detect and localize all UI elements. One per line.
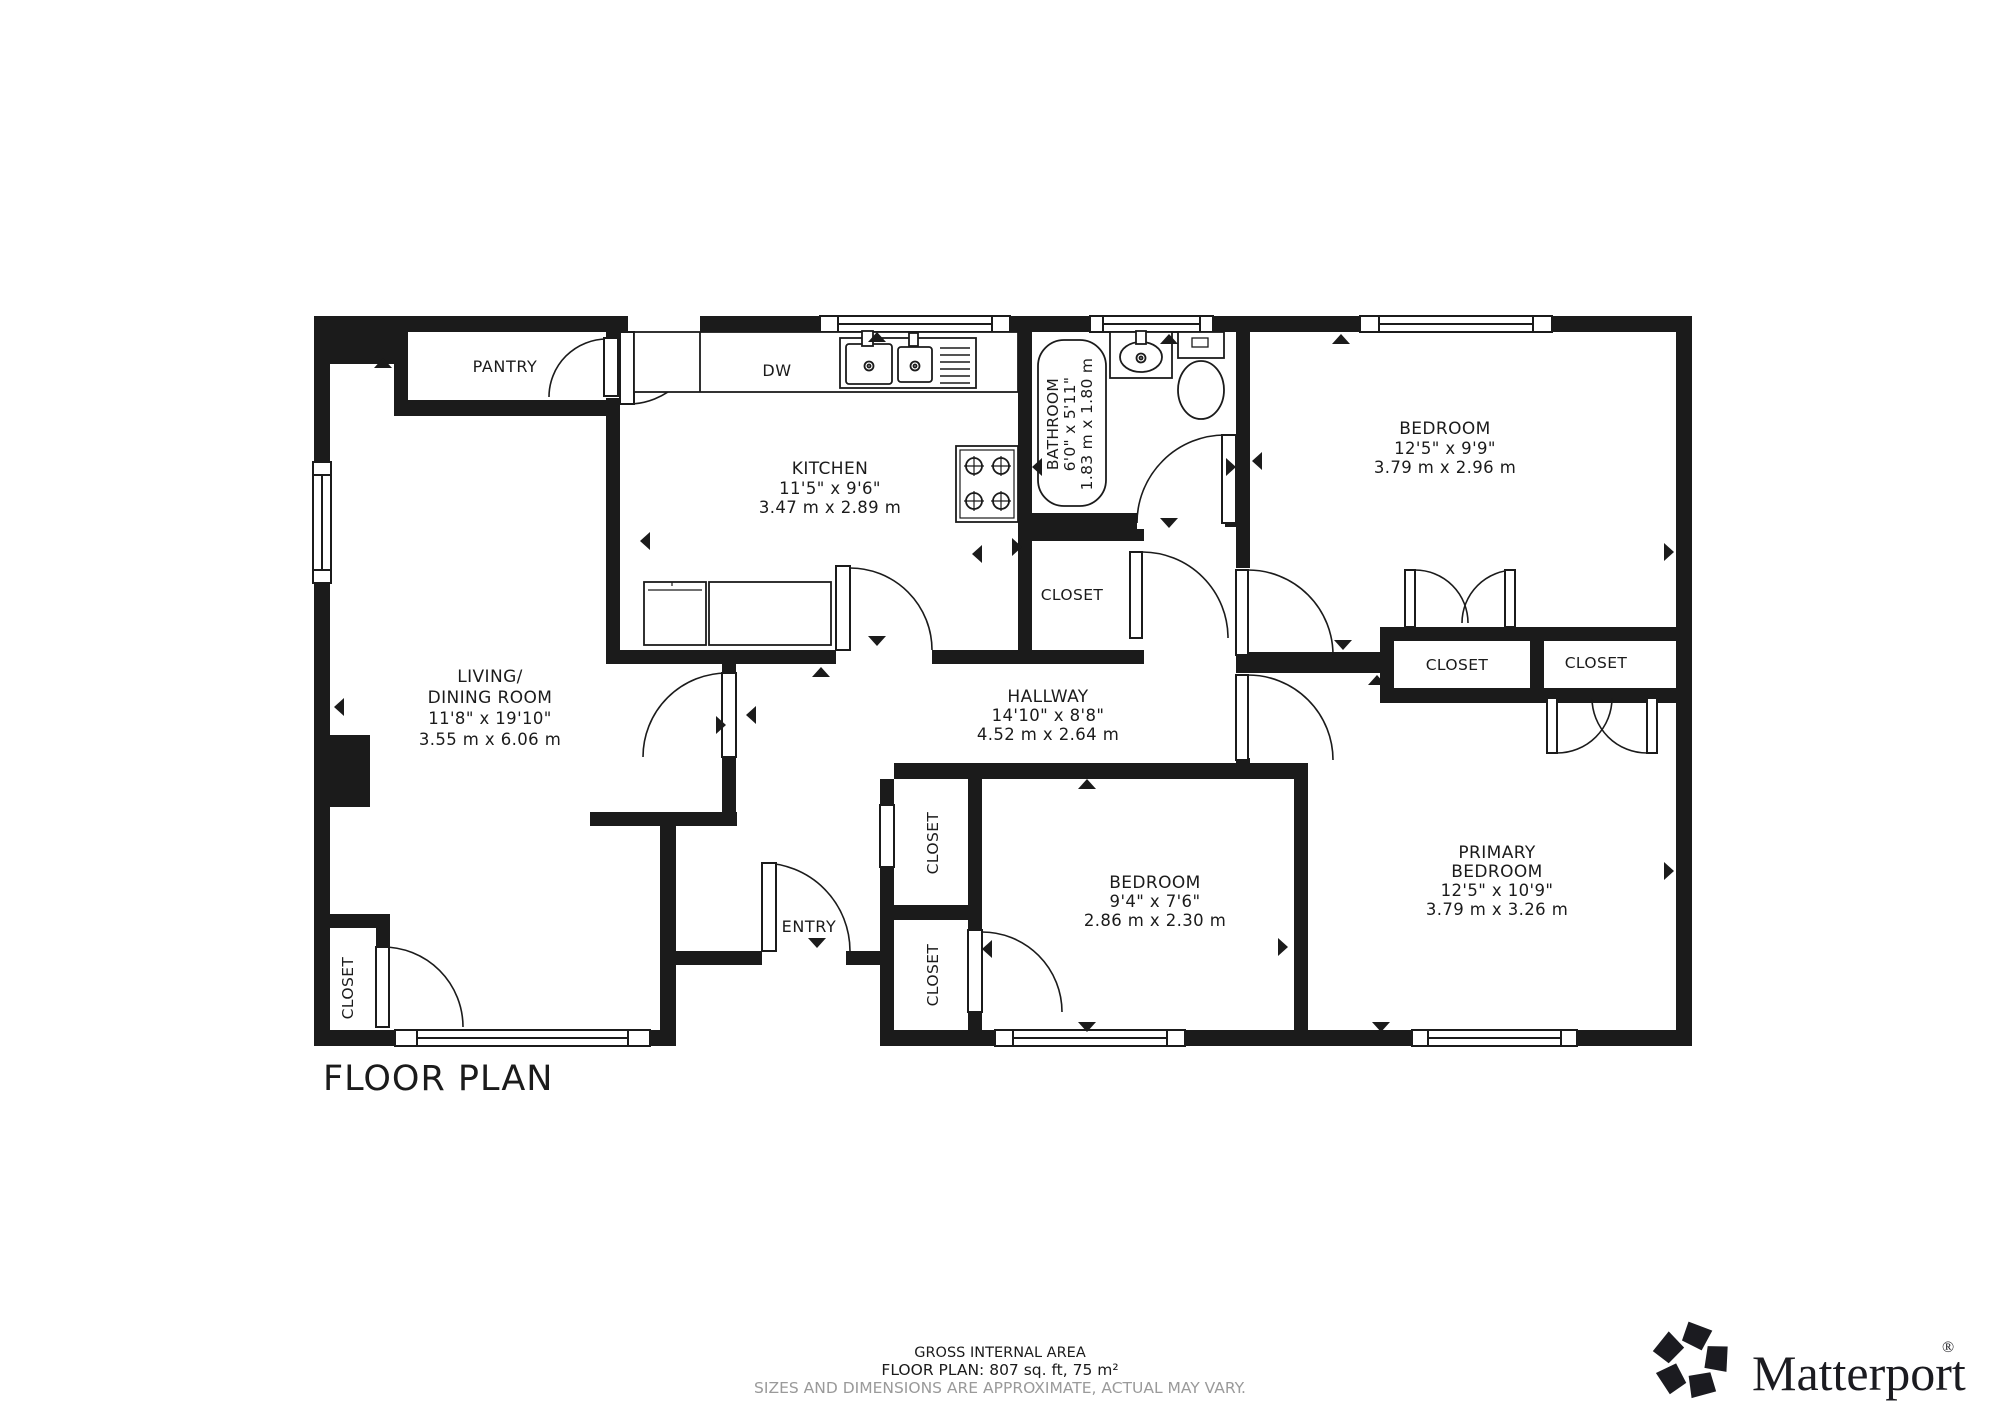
door-living-closet bbox=[376, 947, 463, 1027]
pantry-label: PANTRY bbox=[473, 357, 538, 376]
svg-text:2.86 m x 2.30 m: 2.86 m x 2.30 m bbox=[1084, 911, 1226, 930]
window-bedroom-middle-bottom bbox=[995, 1030, 1185, 1046]
door-hall-closet bbox=[1130, 552, 1228, 638]
floor-plan-page: { "colors": { "ink": "#1b1b1b", "muted":… bbox=[0, 0, 2000, 1415]
footer: GROSS INTERNAL AREA FLOOR PLAN: 807 sq. … bbox=[754, 1345, 1246, 1397]
door-bathroom bbox=[1137, 435, 1236, 523]
footer-disclaimer: SIZES AND DIMENSIONS ARE APPROXIMATE, AC… bbox=[754, 1379, 1246, 1397]
brand-registered-mark: ® bbox=[1942, 1339, 1954, 1356]
window-bedroom-top bbox=[1360, 316, 1552, 332]
svg-text:4.52 m x 2.64 m: 4.52 m x 2.64 m bbox=[977, 725, 1119, 744]
door-pantry bbox=[549, 338, 618, 397]
closet-bedroom-top-label: CLOSET bbox=[1426, 656, 1489, 674]
kitchen-sink-icon bbox=[840, 331, 976, 388]
bathroom-sink-icon bbox=[1110, 331, 1172, 378]
svg-text:3.47 m x 2.89 m: 3.47 m x 2.89 m bbox=[759, 498, 901, 517]
svg-text:12'5" x 9'9": 12'5" x 9'9" bbox=[1394, 439, 1496, 458]
svg-text:11'8" x 19'10": 11'8" x 19'10" bbox=[428, 709, 552, 728]
closet-living-label: CLOSET bbox=[339, 957, 357, 1020]
bedroom-middle-label: BEDROOM 9'4" x 7'6" 2.86 m x 2.30 m bbox=[1084, 873, 1226, 930]
dishwasher-label: DW bbox=[762, 361, 791, 380]
svg-text:BATHROOM: BATHROOM bbox=[1044, 378, 1062, 470]
window-kitchen-top bbox=[820, 316, 1010, 332]
svg-text:3.55 m x 6.06 m: 3.55 m x 6.06 m bbox=[419, 730, 561, 749]
page-title: FLOOR PLAN bbox=[323, 1059, 553, 1099]
primary-bedroom-label: PRIMARY BEDROOM 12'5" x 10'9" 3.79 m x 3… bbox=[1426, 843, 1568, 919]
svg-text:PRIMARY: PRIMARY bbox=[1458, 843, 1535, 863]
counter-bottom bbox=[709, 582, 831, 645]
svg-text:HALLWAY: HALLWAY bbox=[1007, 687, 1088, 707]
door-living-hall bbox=[643, 673, 736, 757]
door-entry bbox=[762, 863, 850, 951]
hallway-label: HALLWAY 14'10" x 8'8" 4.52 m x 2.64 m bbox=[977, 687, 1119, 744]
svg-text:DINING ROOM: DINING ROOM bbox=[428, 688, 553, 708]
brand-name: Matterport bbox=[1752, 1345, 1966, 1401]
footer-floor-plan-area: FLOOR PLAN: 807 sq. ft, 75 m² bbox=[881, 1361, 1118, 1379]
window-bathroom-top bbox=[1090, 316, 1213, 332]
door-closet-bedroom-top-double bbox=[1405, 570, 1515, 627]
svg-text:11'5" x 9'6": 11'5" x 9'6" bbox=[779, 479, 881, 498]
svg-text:BEDROOM: BEDROOM bbox=[1109, 873, 1201, 893]
door-entry-closet bbox=[880, 805, 894, 867]
closet-hall-label: CLOSET bbox=[1041, 586, 1104, 604]
svg-text:6'0" x 5'11": 6'0" x 5'11" bbox=[1061, 377, 1079, 472]
floor-plan-canvas: PANTRY DW KITCHEN 11'5" x 9'6" 3.47 m x … bbox=[0, 0, 2000, 1415]
window-living-left bbox=[313, 462, 331, 583]
svg-text:LIVING/: LIVING/ bbox=[457, 667, 523, 687]
door-bedroom-middle bbox=[968, 930, 1062, 1012]
svg-text:3.79 m x 2.96 m: 3.79 m x 2.96 m bbox=[1374, 458, 1516, 477]
window-living-bottom bbox=[395, 1030, 650, 1046]
kitchen-label: KITCHEN 11'5" x 9'6" 3.47 m x 2.89 m bbox=[759, 459, 901, 517]
closet-entry-lower-label: CLOSET bbox=[924, 944, 942, 1007]
living-dining-label: LIVING/ DINING ROOM 11'8" x 19'10" 3.55 … bbox=[419, 667, 561, 749]
kitchen-appliance-icon bbox=[644, 582, 706, 645]
svg-text:9'4" x 7'6": 9'4" x 7'6" bbox=[1110, 892, 1201, 911]
svg-text:BEDROOM: BEDROOM bbox=[1451, 862, 1543, 882]
svg-text:BEDROOM: BEDROOM bbox=[1399, 419, 1491, 439]
entry-label: ENTRY bbox=[782, 917, 837, 936]
window-primary-bottom bbox=[1412, 1030, 1577, 1046]
closet-entry-upper-label: CLOSET bbox=[924, 812, 942, 875]
toilet-icon bbox=[1178, 332, 1224, 419]
footer-gross-area: GROSS INTERNAL AREA bbox=[914, 1345, 1086, 1361]
wall-openings bbox=[604, 314, 1252, 1048]
stove-icon bbox=[956, 446, 1018, 522]
svg-text:12'5" x 10'9": 12'5" x 10'9" bbox=[1441, 881, 1554, 900]
svg-text:14'10" x 8'8": 14'10" x 8'8" bbox=[992, 706, 1105, 725]
closet-primary-label: CLOSET bbox=[1565, 654, 1628, 672]
door-closet-primary-double bbox=[1547, 698, 1657, 753]
svg-text:KITCHEN: KITCHEN bbox=[792, 459, 868, 479]
matterport-logo-icon bbox=[1651, 1322, 1735, 1406]
svg-text:1.83 m x 1.80 m: 1.83 m x 1.80 m bbox=[1078, 358, 1096, 491]
bedroom-top-label: BEDROOM 12'5" x 9'9" 3.79 m x 2.96 m bbox=[1374, 419, 1516, 477]
brand: Matterport ® bbox=[1651, 1322, 1966, 1406]
svg-text:3.79 m x 3.26 m: 3.79 m x 3.26 m bbox=[1426, 900, 1568, 919]
